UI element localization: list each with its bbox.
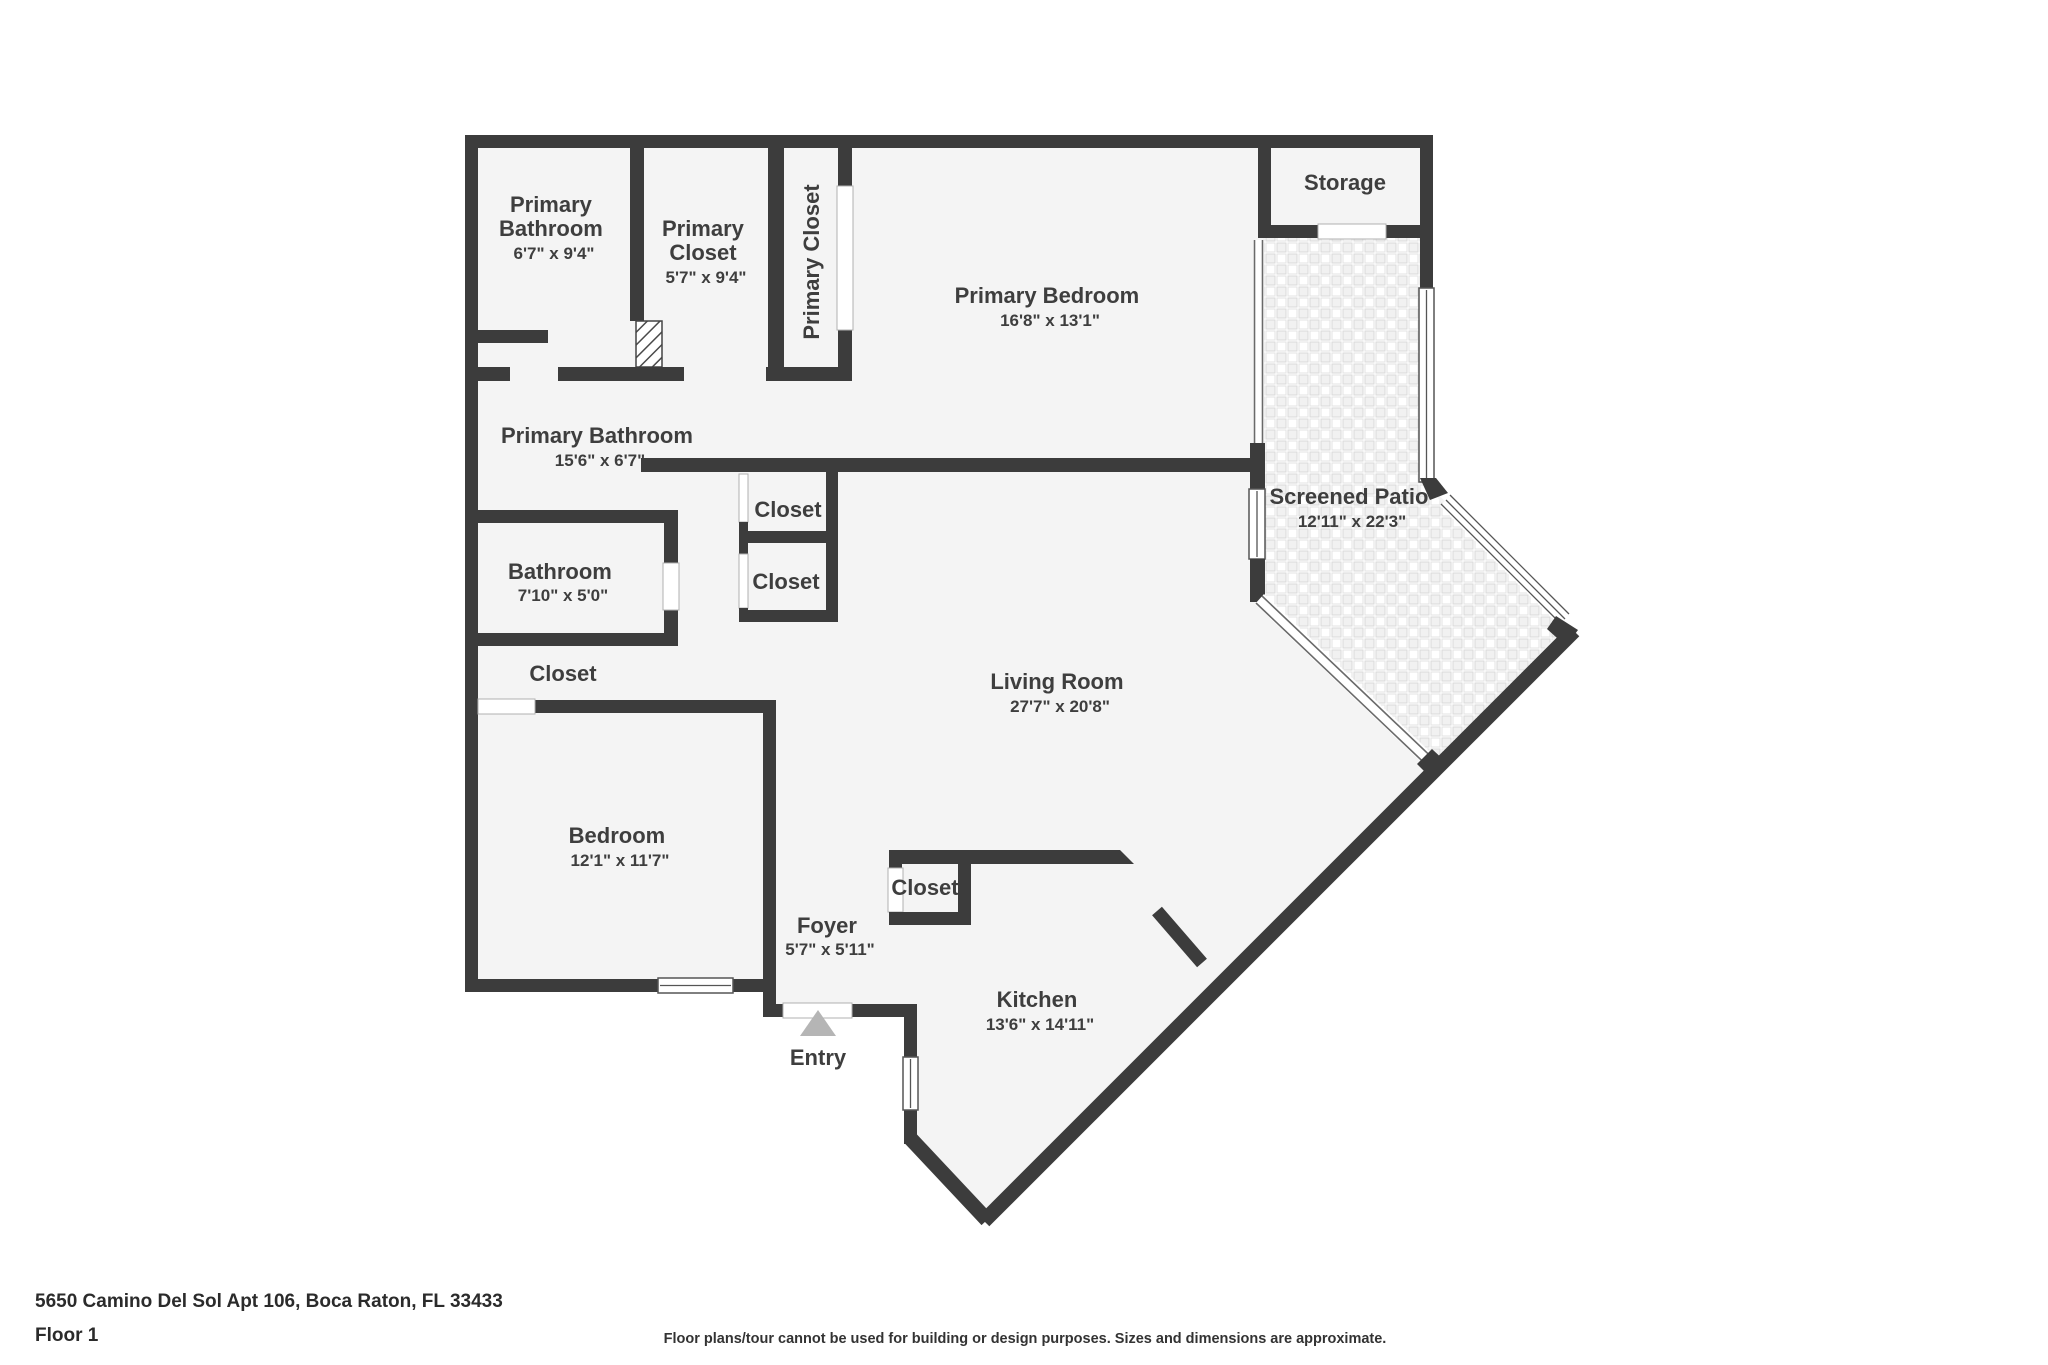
door-gap-bathroom — [663, 563, 679, 610]
door-hatch-block — [636, 321, 662, 367]
wall-topblock-bottom-c — [766, 367, 852, 381]
wall-top — [465, 135, 1433, 148]
label-foyer: Foyer 5'7" x 5'11" — [785, 913, 874, 959]
label-closet-bedroom-hall: Closet — [529, 661, 597, 686]
floor-plan-page: Primary Bathroom 6'7" x 9'4" Primary Clo… — [0, 0, 2048, 1365]
wall-topblock-bottom-b — [558, 367, 684, 381]
wall-kitchen-top — [889, 850, 1134, 864]
label-closet-foyer: Closet — [891, 875, 959, 900]
opening-vcloset — [837, 186, 853, 330]
wall-pcloset-vcloset — [768, 148, 784, 367]
wall-right-upper — [1420, 135, 1433, 290]
wall-hallcloset-divider — [740, 531, 838, 543]
footer: 5650 Camino Del Sol Apt 106, Boca Raton,… — [35, 1291, 1386, 1347]
label-bathroom: Bathroom 7'10" x 5'0" — [508, 559, 618, 605]
wall-hallcloset-leftfoot — [739, 608, 748, 622]
wall-pbath-pcloset — [630, 148, 644, 321]
label-storage: Storage — [1304, 170, 1386, 195]
door-hallcloset-top — [739, 474, 748, 522]
door-gap-bedroom-closet — [478, 699, 535, 714]
label-primary-bathroom-top: Primary Bathroom 6'7" x 9'4" — [499, 192, 609, 263]
wall-bathroom-top — [465, 510, 678, 523]
wall-topblock-bottom-a — [465, 367, 510, 381]
label-entry: Entry — [790, 1045, 847, 1070]
label-bedroom: Bedroom 12'1" x 11'7" — [569, 823, 672, 870]
wall-storage-left — [1258, 135, 1271, 238]
wall-hallcloset-right — [826, 472, 838, 622]
wall-foyercloset-right — [958, 850, 971, 925]
wall-hallcloset-bottom — [740, 610, 838, 622]
door-hallcloset-bottom — [739, 554, 748, 608]
floor-plan-canvas: Primary Bathroom 6'7" x 9'4" Primary Clo… — [0, 0, 2048, 1365]
footer-address: 5650 Camino Del Sol Apt 106, Boca Raton,… — [35, 1291, 503, 1312]
door-gap-storage — [1318, 224, 1386, 239]
label-primary-closet-vertical: Primary Closet — [799, 184, 824, 340]
label-primary-closet: Primary Closet 5'7" x 9'4" — [662, 216, 750, 287]
label-closet-hall-top: Closet — [754, 497, 822, 522]
wall-left — [465, 135, 478, 992]
footer-floor-label: Floor 1 — [35, 1325, 99, 1346]
label-kitchen: Kitchen 13'6" x 14'11" — [986, 987, 1094, 1034]
wall-pbath-stub — [478, 330, 548, 343]
footer-disclaimer: Floor plans/tour cannot be used for buil… — [664, 1331, 1387, 1347]
label-living-room: Living Room 27'7" x 20'8" — [990, 669, 1129, 716]
wall-living-top — [641, 458, 1253, 472]
wall-bedroom-right — [763, 700, 776, 992]
wall-hallcloset-leftblock — [739, 522, 748, 554]
label-closet-hall-bottom: Closet — [752, 569, 820, 594]
wall-bathroom-bottom — [465, 633, 678, 646]
